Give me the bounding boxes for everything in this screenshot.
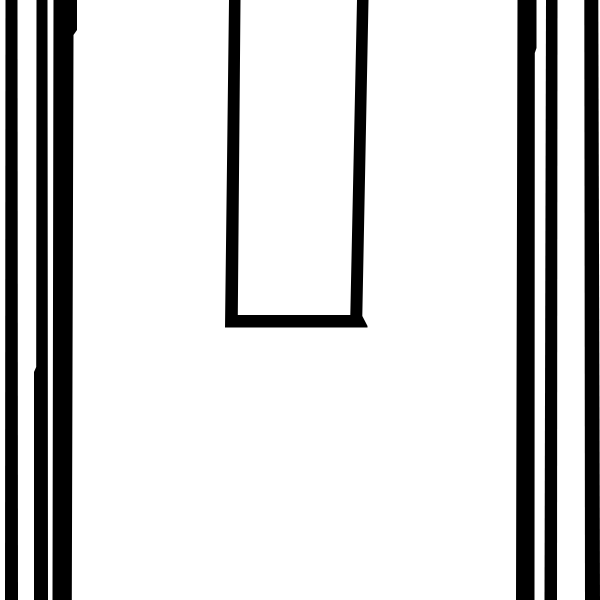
left-stripe-3-wide — [53, 0, 78, 600]
canvas — [0, 0, 600, 600]
magnified-glyph-canvas — [0, 0, 600, 600]
left-stripe-1 — [5, 0, 18, 600]
right-stripe-mid — [545, 0, 558, 600]
right-stripe-edge — [584, 0, 600, 600]
right-stripe-wide — [516, 0, 537, 600]
left-stripe-2 — [34, 0, 48, 600]
center-u-outline — [225, 0, 369, 328]
